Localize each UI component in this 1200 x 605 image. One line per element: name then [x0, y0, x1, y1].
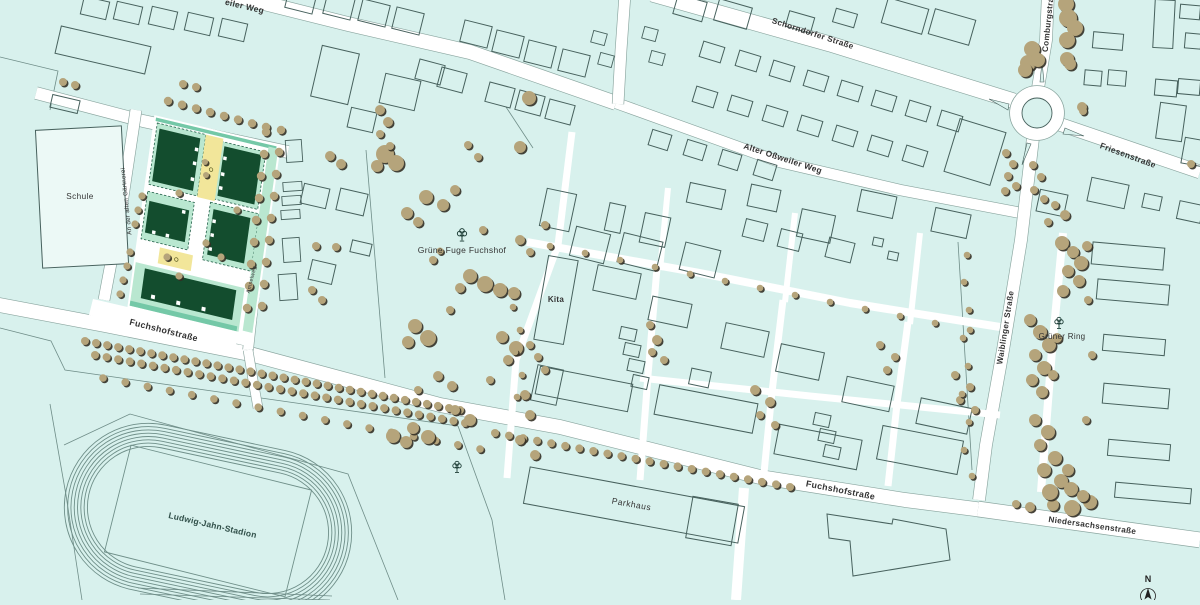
svg-text:Grüne Fuge Fuchshof: Grüne Fuge Fuchshof: [418, 245, 507, 255]
svg-text:Grüner Ring: Grüner Ring: [1039, 332, 1086, 341]
svg-text:Schule: Schule: [66, 192, 93, 201]
svg-text:Kita: Kita: [548, 295, 565, 304]
svg-text:N: N: [1145, 574, 1152, 584]
